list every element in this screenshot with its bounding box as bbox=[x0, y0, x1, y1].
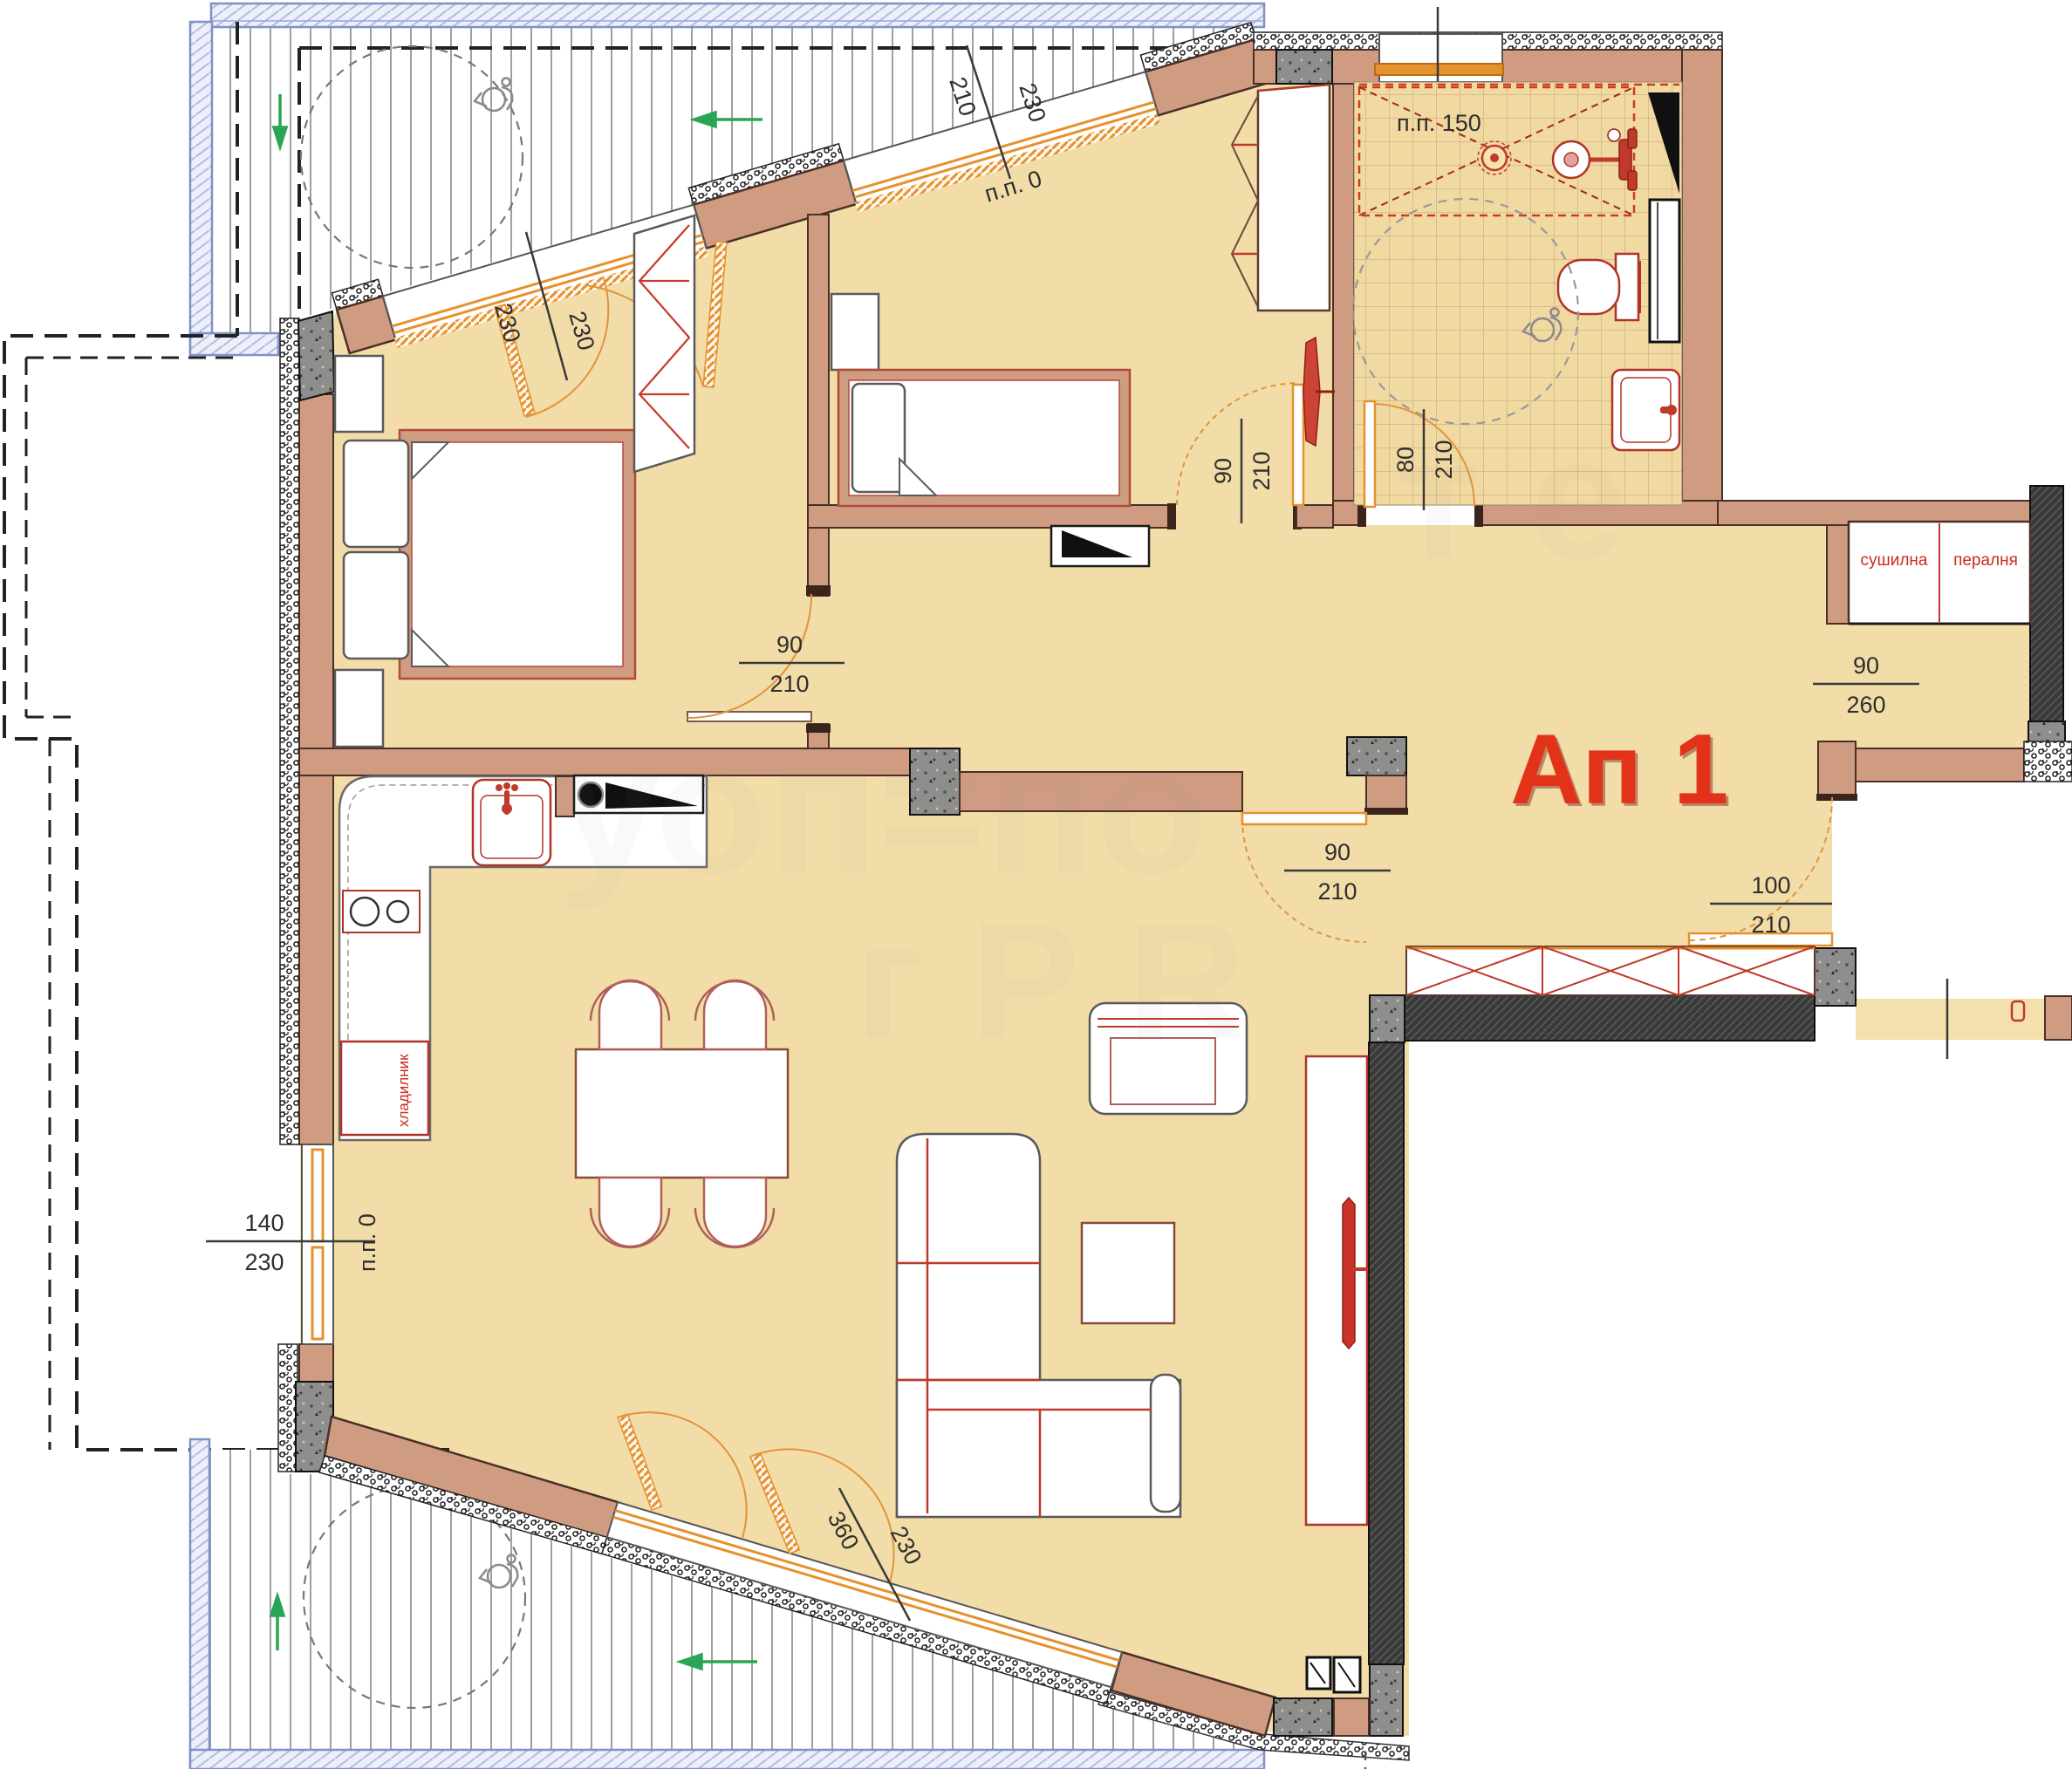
svg-text:230: 230 bbox=[244, 1249, 284, 1275]
svg-text:уоп=по: уоп=по bbox=[558, 707, 1207, 912]
svg-text:210: 210 bbox=[1751, 912, 1790, 938]
svg-text:пералня: пералня bbox=[1953, 551, 2018, 570]
svg-text:т е: т е bbox=[1396, 401, 1627, 596]
svg-text:п.п. 150: п.п. 150 bbox=[1397, 110, 1481, 136]
svg-text:г Р R: г Р R bbox=[855, 889, 1247, 1074]
svg-text:п.п. 0: п.п. 0 bbox=[354, 1213, 380, 1272]
svg-text:210: 210 bbox=[769, 671, 809, 697]
svg-text:100: 100 bbox=[1751, 872, 1790, 898]
svg-text:хладилник: хладилник bbox=[395, 1054, 412, 1127]
svg-text:1: 1 bbox=[1673, 714, 1728, 825]
svg-text:Ап: Ап bbox=[1510, 714, 1642, 825]
svg-text:90: 90 bbox=[776, 632, 803, 658]
svg-text:140: 140 bbox=[244, 1210, 284, 1236]
svg-text:90: 90 bbox=[1853, 652, 1879, 679]
svg-text:сушилна: сушилна bbox=[1860, 551, 1927, 570]
svg-text:260: 260 bbox=[1846, 692, 1885, 718]
svg-text:210: 210 bbox=[1317, 878, 1357, 905]
svg-text:90: 90 bbox=[1324, 839, 1351, 865]
svg-text:90: 90 bbox=[1210, 458, 1236, 484]
svg-text:210: 210 bbox=[1248, 451, 1275, 490]
